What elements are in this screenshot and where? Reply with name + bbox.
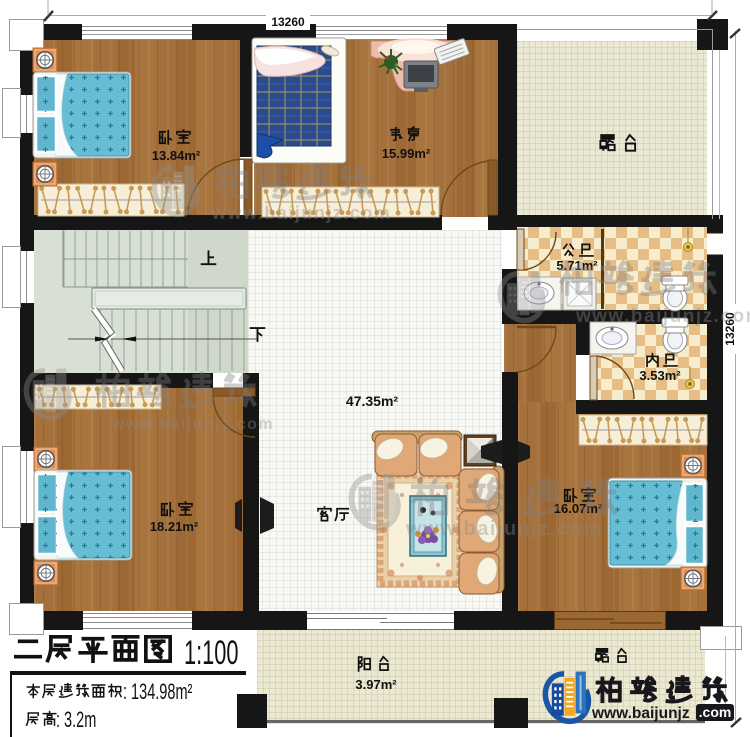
svg-text:.com: .com — [699, 704, 732, 720]
svg-text:13.84m²: 13.84m² — [152, 148, 201, 163]
svg-text:16.07m²: 16.07m² — [554, 501, 603, 516]
svg-text:3.97m²: 3.97m² — [355, 677, 397, 692]
svg-text:: 134.98m²: : 134.98m² — [123, 679, 192, 704]
svg-text:3.53m²: 3.53m² — [639, 368, 681, 383]
svg-text:18.21m²: 18.21m² — [150, 519, 199, 534]
svg-text:: 3.2m: : 3.2m — [56, 707, 96, 732]
svg-text:www.baijunjz: www.baijunjz — [591, 705, 690, 722]
svg-text:47.35m²: 47.35m² — [346, 393, 398, 409]
svg-text:15.99m²: 15.99m² — [382, 146, 431, 161]
svg-text:www.baijunjz.com: www.baijunjz.com — [111, 416, 274, 433]
svg-text:www.baijunjz.com: www.baijunjz.com — [405, 518, 603, 540]
svg-text:www.baijunjz.com: www.baijunjz.com — [211, 203, 391, 223]
svg-text:www.baijunjz.com: www.baijunjz.com — [575, 306, 750, 327]
